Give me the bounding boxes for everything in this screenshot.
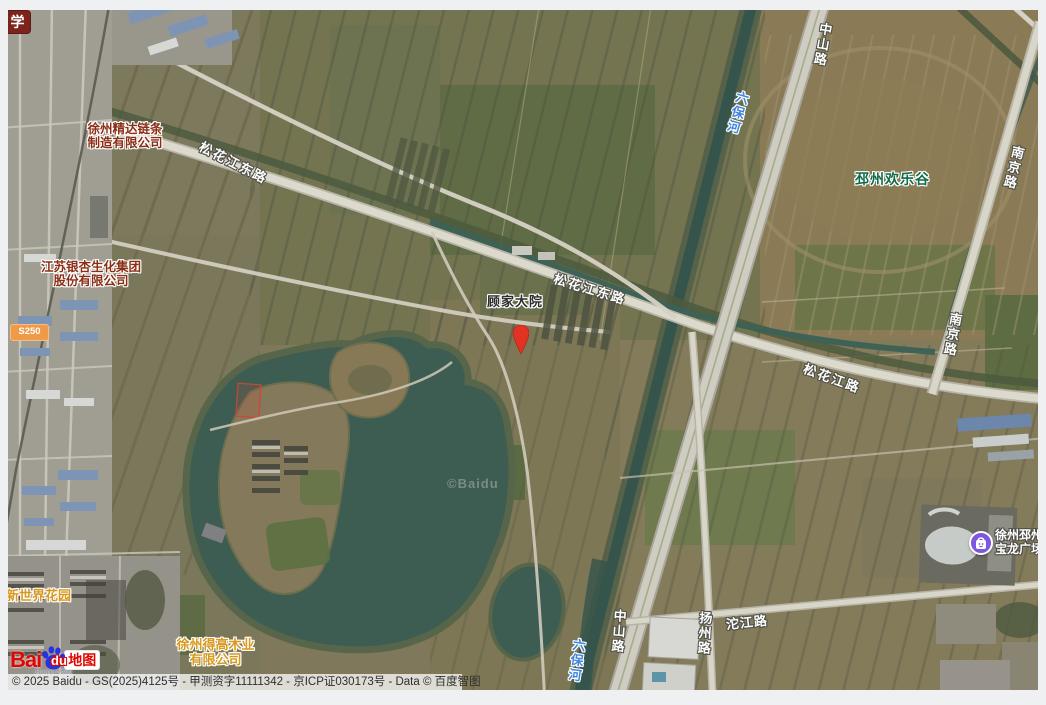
map-attribution: © 2025 Baidu - GS(2025)4125号 - 甲测资字11111… [8,674,462,690]
pin-icon [513,325,529,355]
attribution-text: © 2025 Baidu - GS(2025)4125号 - 甲测资字11111… [12,676,481,688]
logo-map-text: 地图 [64,650,100,670]
shopping-mall-icon[interactable] [969,531,993,555]
logo-du-text: du [51,653,67,668]
school-poi-badge: 学 [8,10,31,34]
poi-label-huanlegu[interactable]: 邳州欢乐谷 [855,172,930,188]
map-world: 学 S250 徐州精达链条 制造有限公司 江苏银杏生化集团 股份有限公司 储运 … [8,10,1038,690]
poi-label-baolong[interactable]: 徐州邳州 宝龙广场 [995,529,1038,556]
map-canvas[interactable]: 学 S250 徐州精达链条 制造有限公司 江苏银杏生化集团 股份有限公司 储运 … [8,10,1038,690]
poi-label-jingda-company[interactable]: 徐州精达链条 制造有限公司 [80,122,170,150]
baidu-maps-logo[interactable]: Bai du 地图 [10,644,100,676]
road-label-yangzhou: 扬州路 [695,611,712,657]
route-s250-badge: S250 [10,324,49,341]
baidu-map-window: 学 S250 徐州精达链条 制造有限公司 江苏银杏生化集团 股份有限公司 储运 … [0,0,1046,705]
poi-label-degao[interactable]: 徐州得高木业 有限公司 [168,638,263,667]
poi-label-gujiadayuan[interactable]: 顾家大院 [487,295,543,310]
poi-label-yinxing-company[interactable]: 江苏银杏生化集团 股份有限公司 [32,260,150,288]
map-pin[interactable] [513,325,529,360]
poi-label-xinshijie[interactable]: 邳新世界花园 [8,589,71,604]
shopping-bag-glyph [971,533,991,553]
baidu-watermark: ©Baidu [447,476,499,491]
road-label-zhongshan-south: 中山路 [608,609,626,655]
logo-bai-text: Bai [10,647,41,673]
